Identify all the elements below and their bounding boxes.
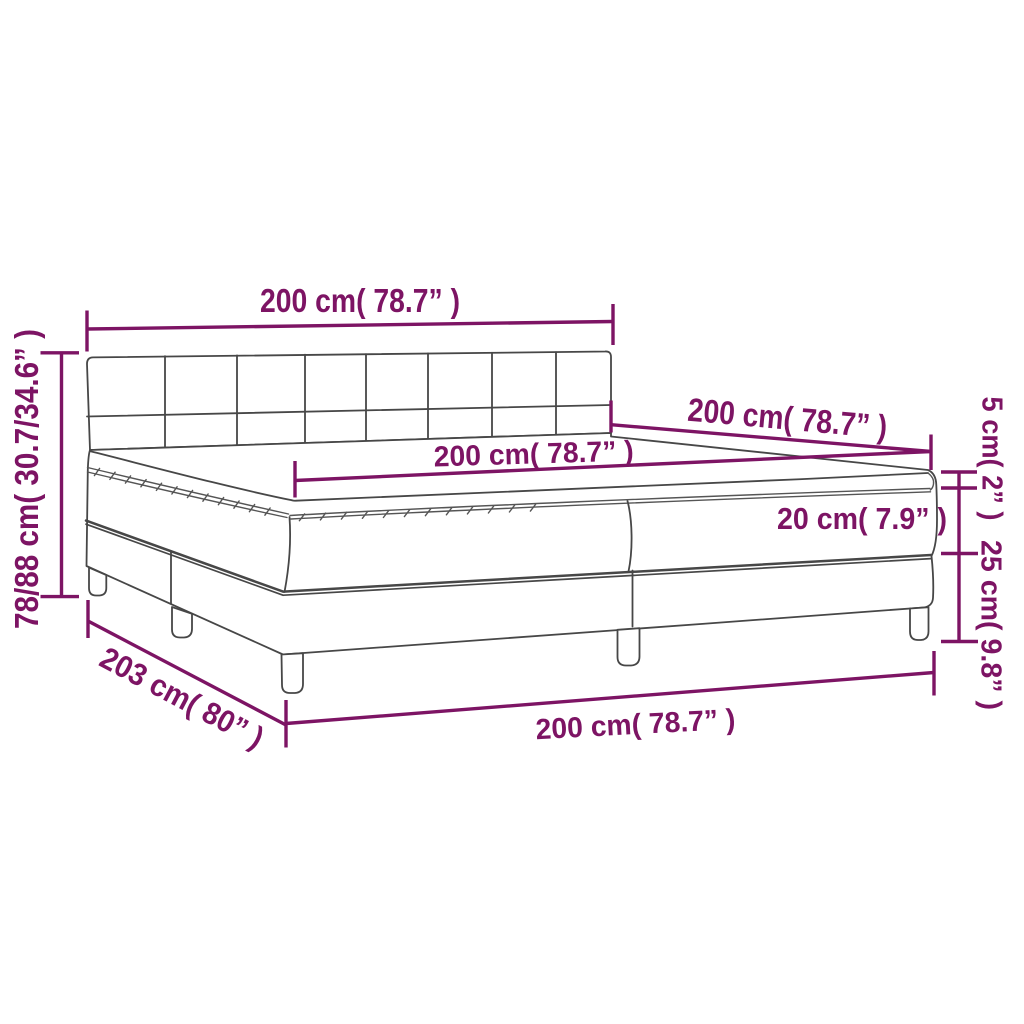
- svg-text:20 cm( 7.9” ): 20 cm( 7.9” ): [777, 501, 947, 536]
- svg-text:78/88 cm( 30.7/34.6” ): 78/88 cm( 30.7/34.6” ): [8, 329, 45, 629]
- svg-text:5 cm( 2” ): 5 cm( 2” ): [976, 397, 1008, 521]
- svg-text:200 cm( 78.7” ): 200 cm( 78.7” ): [260, 282, 460, 319]
- svg-text:25 cm( 9.8” ): 25 cm( 9.8” ): [975, 540, 1007, 710]
- svg-text:200 cm( 78.7” ): 200 cm( 78.7” ): [433, 436, 634, 474]
